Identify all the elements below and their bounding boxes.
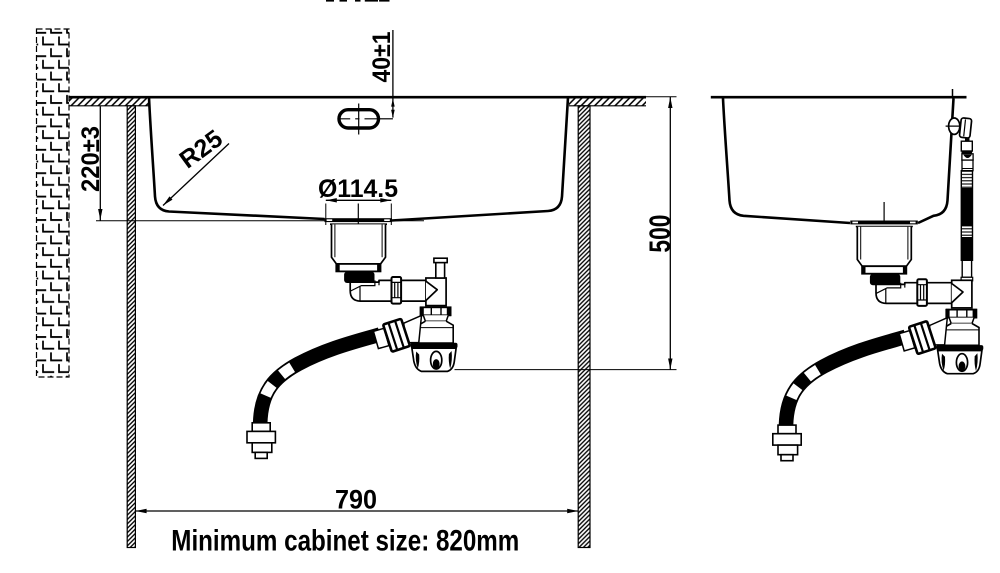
svg-text:R25: R25 [174, 125, 228, 175]
svg-text:500: 500 [644, 215, 677, 253]
svg-text:Ø114.5: Ø114.5 [318, 175, 398, 203]
svg-text:220±3: 220±3 [77, 126, 105, 192]
svg-text:40±1: 40±1 [368, 31, 396, 82]
svg-text:790: 790 [335, 484, 377, 514]
svg-text:Minimum cabinet size: 820mm: Minimum cabinet size: 820mm [171, 524, 519, 557]
